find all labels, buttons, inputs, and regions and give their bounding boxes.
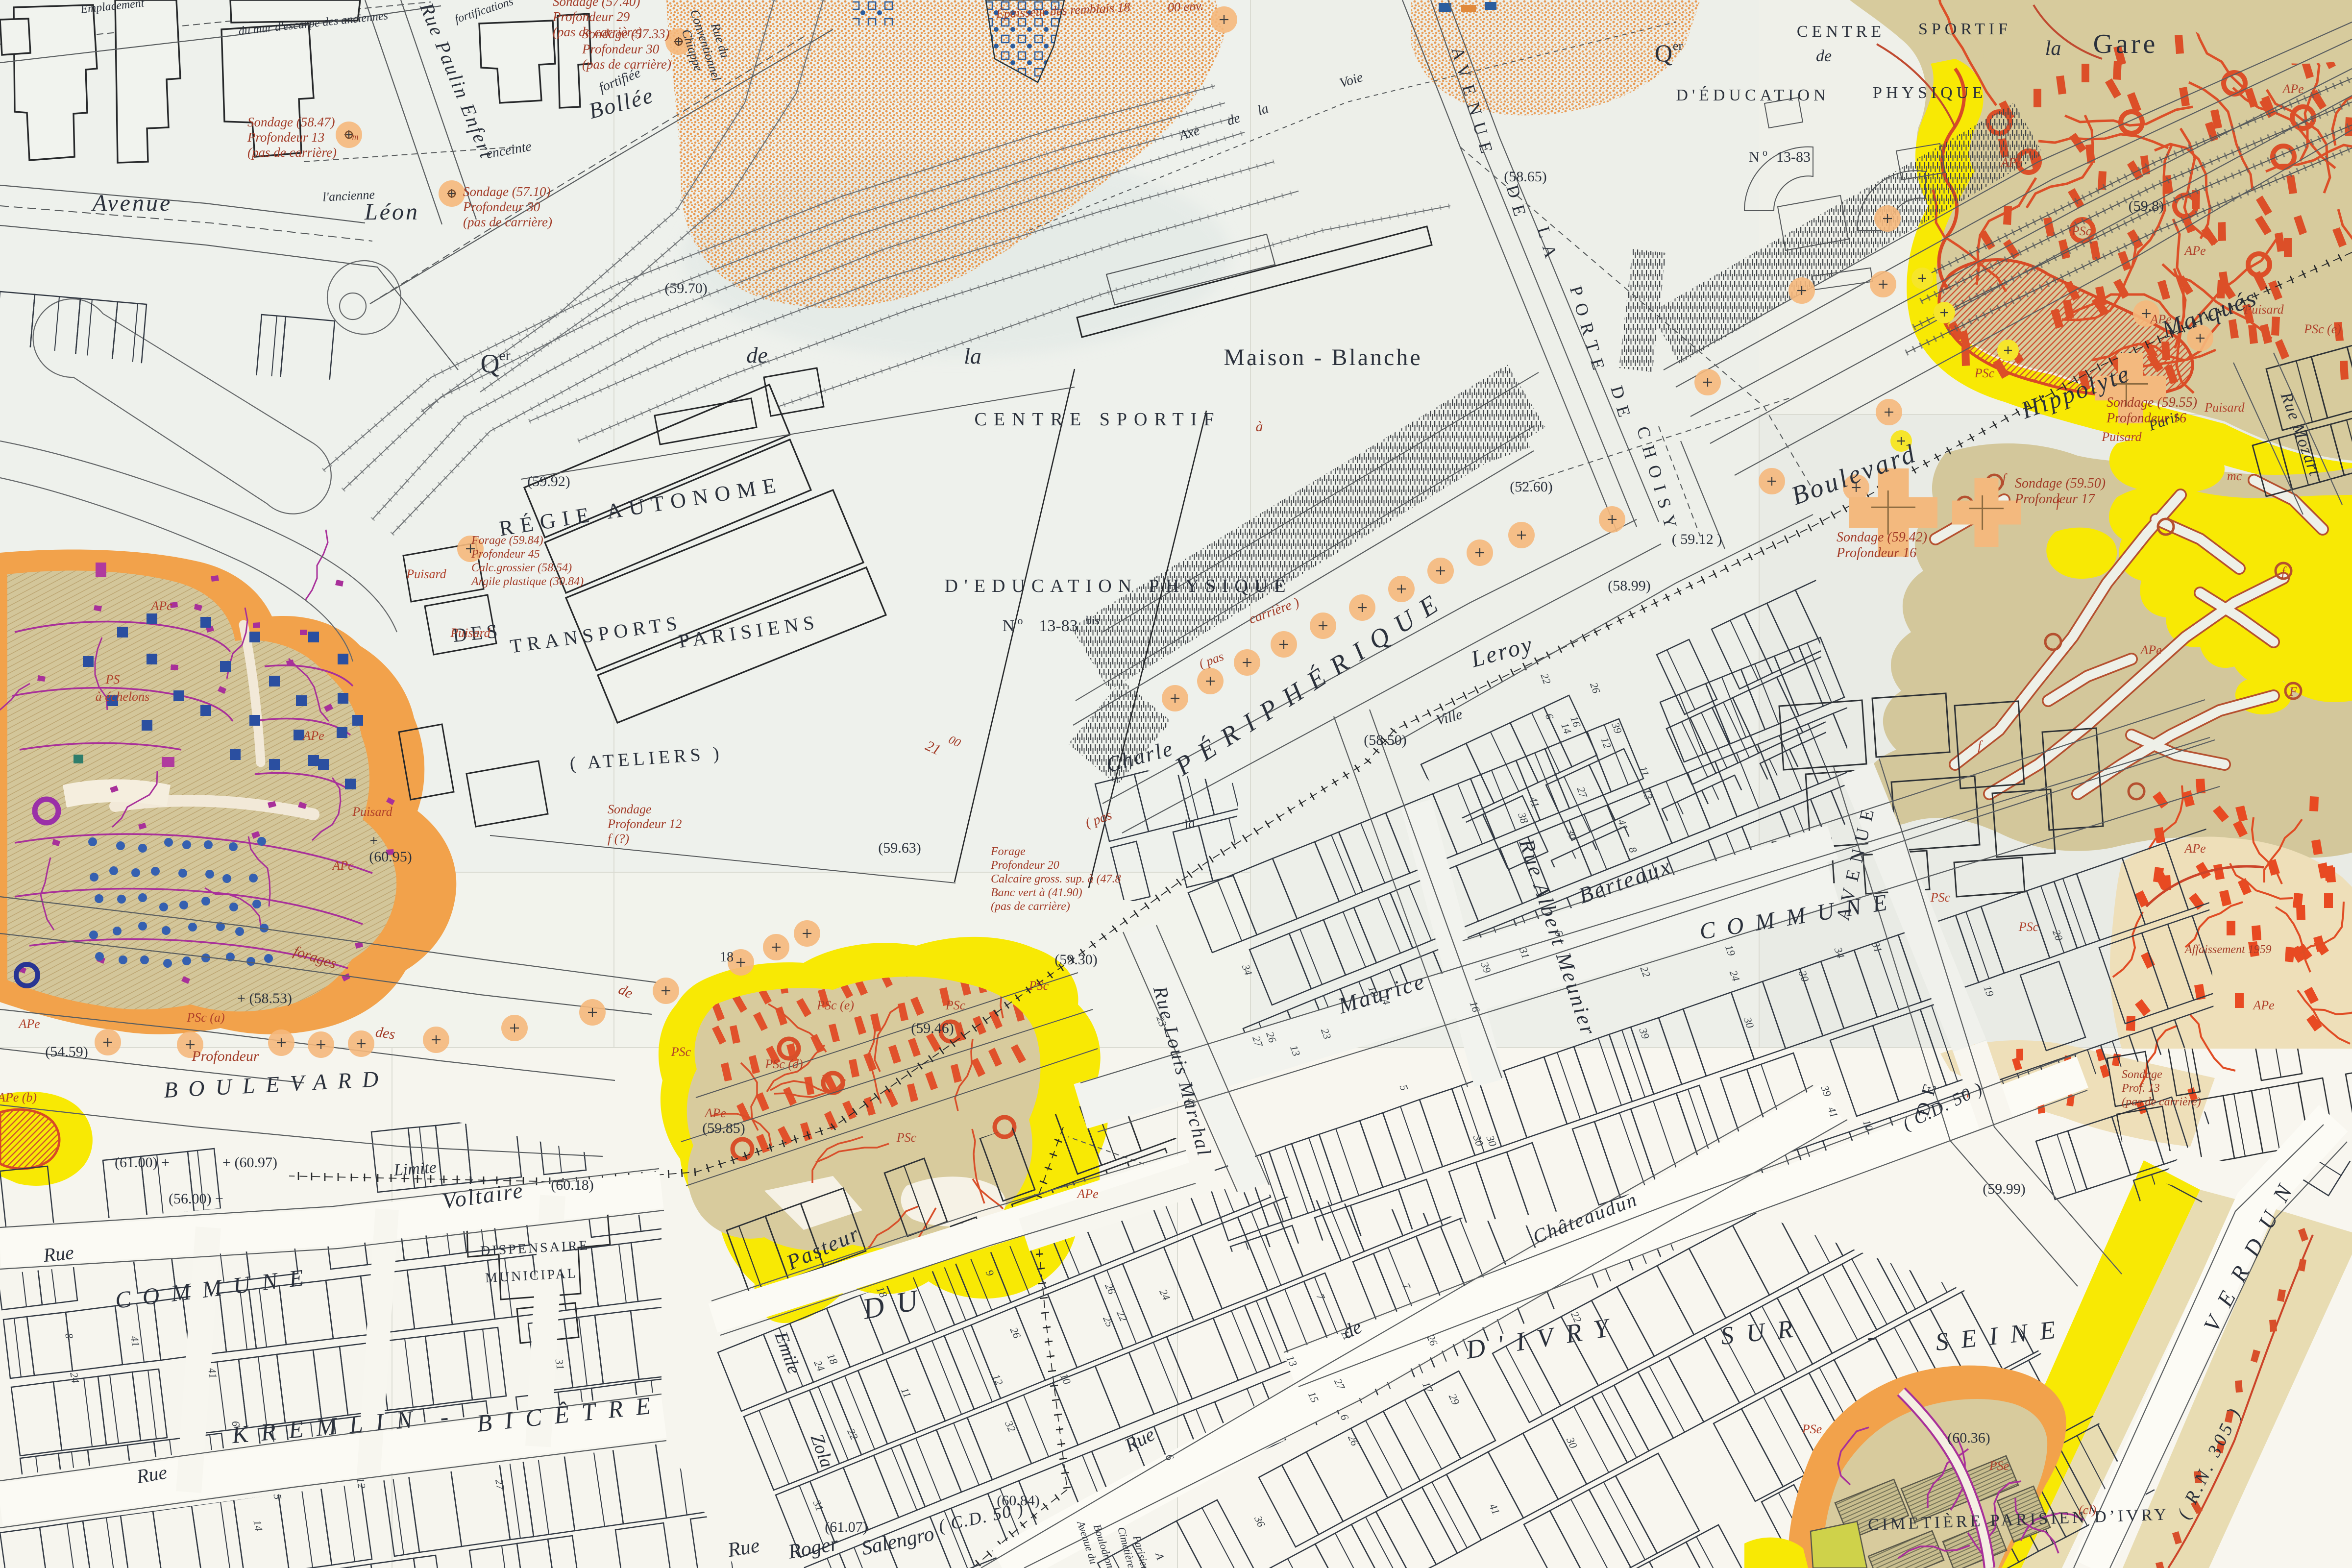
svg-text:Puisard: Puisard: [450, 626, 490, 640]
svg-text:(58.50): (58.50): [1364, 732, 1406, 748]
svg-text:(59.85): (59.85): [702, 1120, 745, 1136]
svg-text:APe: APe: [2139, 643, 2161, 657]
svg-text:Puisard: Puisard: [2204, 400, 2245, 415]
svg-text:Forage: Forage: [990, 845, 1026, 858]
svg-text:12: 12: [354, 1477, 368, 1490]
svg-text:(60.36): (60.36): [1947, 1430, 1990, 1446]
svg-text:Gare: Gare: [2093, 29, 2158, 59]
svg-text:Sondage (59.50): Sondage (59.50): [2015, 476, 2106, 491]
svg-text:(59.30): (59.30): [1054, 952, 1097, 968]
svg-text:la: la: [2045, 37, 2061, 60]
svg-text:PSc: PSc: [1974, 366, 1995, 380]
svg-text:APe: APe: [18, 1017, 40, 1031]
svg-text:Q: Q: [481, 349, 500, 378]
svg-text:PSc (e): PSc (e): [816, 998, 854, 1012]
svg-text:APe: APe: [704, 1106, 726, 1120]
svg-text:CENTRE: CENTRE: [1797, 23, 1885, 41]
svg-text:Prof. 13: Prof. 13: [2121, 1082, 2160, 1095]
svg-text:(61.00) +: (61.00) +: [115, 1154, 170, 1171]
svg-text:(60.18): (60.18): [551, 1177, 593, 1193]
svg-text:PHYSIQUE: PHYSIQUE: [1873, 84, 1986, 102]
svg-text:à: à: [1256, 418, 1263, 435]
svg-text:Profondeur 16: Profondeur 16: [2106, 411, 2186, 426]
svg-text:o: o: [1763, 147, 1767, 158]
svg-text:o: o: [1018, 614, 1023, 627]
svg-text:N: N: [1749, 149, 1760, 165]
svg-text:Profondeur 13: Profondeur 13: [247, 130, 324, 145]
svg-text:(pas de carrière): (pas de carrière): [582, 57, 671, 72]
svg-text:APe: APe: [302, 729, 324, 743]
svg-text:Calc.grossier (58.54): Calc.grossier (58.54): [471, 562, 572, 574]
svg-text:(pas de carrière): (pas de carrière): [463, 215, 552, 229]
svg-text:Forage (59.84): Forage (59.84): [471, 534, 543, 547]
svg-text:(60.84): (60.84): [997, 1493, 1039, 1509]
svg-text:Banc vert à (41.90): Banc vert à (41.90): [991, 886, 1082, 899]
svg-text:(54.59): (54.59): [45, 1044, 88, 1060]
svg-text:+: +: [370, 833, 378, 849]
svg-text:(58.99): (58.99): [1608, 578, 1650, 594]
svg-text:(59.63): (59.63): [878, 840, 921, 856]
svg-text:APe: APe: [1076, 1187, 1098, 1201]
svg-text:13-83: 13-83: [1776, 149, 1811, 165]
svg-text:F: F: [2289, 685, 2298, 699]
svg-text:(59.8): (59.8): [2129, 198, 2164, 214]
svg-text:PSc: PSc: [1930, 890, 1951, 905]
svg-text:Calcaire gross. sup. à (47.8: Calcaire gross. sup. à (47.8: [991, 873, 1121, 885]
svg-text:APe: APe: [2183, 244, 2205, 258]
svg-text:(60.95): (60.95): [369, 849, 412, 865]
svg-text:mc: mc: [2227, 469, 2242, 483]
svg-text:PSc: PSc: [2018, 920, 2039, 934]
svg-text:Profondeur 20: Profondeur 20: [990, 859, 1059, 872]
svg-text:APe (b): APe (b): [0, 1090, 37, 1104]
svg-text:des: des: [374, 1024, 396, 1042]
svg-text:(pas de carrière): (pas de carrière): [553, 24, 642, 39]
svg-text:PSc (a): PSc (a): [186, 1010, 224, 1025]
svg-text:(pas de carrière): (pas de carrière): [247, 145, 337, 160]
svg-text:(pas de carrière): (pas de carrière): [991, 900, 1070, 913]
svg-text:(56.00) +: (56.00) +: [169, 1191, 223, 1207]
svg-text:Sondage (57.10): Sondage (57.10): [463, 184, 550, 199]
svg-text:PSe: PSe: [1989, 1459, 2009, 1473]
svg-text:Rue: Rue: [42, 1241, 75, 1266]
svg-text:Puisard: Puisard: [406, 567, 446, 581]
svg-text:la: la: [964, 343, 981, 368]
svg-text:(59.70): (59.70): [664, 280, 707, 296]
svg-text:(59.92): (59.92): [527, 473, 570, 490]
svg-text:APe: APe: [2149, 312, 2171, 326]
svg-text:l'ancienne: l'ancienne: [322, 187, 375, 204]
svg-text:APc: APc: [331, 858, 354, 873]
svg-text:f (?): f (?): [608, 832, 629, 846]
svg-text:PSc: PSc: [896, 1130, 917, 1145]
svg-text:de: de: [746, 343, 767, 367]
svg-text:PSc: PSc: [671, 1045, 691, 1059]
svg-text:Puisard: Puisard: [352, 805, 392, 819]
svg-text:de: de: [1816, 47, 1832, 65]
svg-text:Profondeur 16: Profondeur 16: [1836, 545, 1916, 561]
svg-text:31: 31: [553, 1358, 567, 1371]
svg-text:PS: PS: [105, 672, 120, 686]
svg-text:APe: APe: [2183, 841, 2205, 856]
svg-text:N: N: [1003, 617, 1015, 635]
svg-text:Profondeur 30: Profondeur 30: [463, 199, 540, 214]
svg-text:PSc: PSc: [945, 998, 966, 1012]
svg-text:(59.99): (59.99): [1983, 1181, 2025, 1197]
svg-text:(58.65): (58.65): [1504, 169, 1546, 185]
svg-text:(52.60): (52.60): [1510, 479, 1552, 495]
svg-text:Avenue: Avenue: [91, 190, 172, 216]
svg-text:(59.46): (59.46): [911, 1020, 954, 1036]
svg-text:14: 14: [251, 1519, 265, 1532]
svg-text:APc: APc: [150, 599, 172, 613]
svg-text:CENTRE SPORTIF: CENTRE SPORTIF: [974, 409, 1221, 430]
svg-text:24: 24: [68, 1371, 81, 1384]
svg-text:Profondeur 29: Profondeur 29: [552, 9, 630, 24]
svg-text:APe: APe: [2281, 82, 2303, 96]
svg-text:Sondage: Sondage: [608, 802, 652, 816]
svg-text:D'EDUCATION PHYSIQUE: D'EDUCATION PHYSIQUE: [944, 576, 1292, 596]
svg-text:PSe: PSe: [1802, 1422, 1822, 1436]
svg-text:41: 41: [206, 1367, 220, 1379]
svg-text:13-83: 13-83: [1039, 617, 1078, 635]
svg-text:PSc: PSc: [1029, 979, 1049, 993]
svg-text:Q: Q: [1655, 39, 1672, 67]
svg-text:Profondeur: Profondeur: [191, 1048, 259, 1064]
svg-text:er: er: [499, 347, 510, 364]
svg-text:+ (58.53): + (58.53): [237, 990, 292, 1006]
svg-text:Maison - Blanche: Maison - Blanche: [1224, 344, 1422, 370]
svg-text:Sondage (57.40): Sondage (57.40): [553, 0, 640, 9]
svg-text:Limite: Limite: [393, 1158, 437, 1179]
svg-text:à échelons: à échelons: [96, 689, 149, 704]
svg-text:Sondage (58.47): Sondage (58.47): [247, 115, 335, 129]
svg-text:18: 18: [720, 950, 734, 965]
svg-text:PSc: PSc: [2071, 224, 2092, 238]
svg-text:m: m: [352, 132, 359, 142]
svg-text:+ (60.97): + (60.97): [222, 1154, 277, 1171]
svg-text:Puisard: Puisard: [2243, 302, 2284, 317]
svg-text:(61.07): (61.07): [825, 1519, 867, 1535]
svg-text:00 env.: 00 env.: [1167, 0, 1204, 15]
svg-text:Sondage: Sondage: [2122, 1068, 2162, 1081]
svg-text:APe: APe: [2000, 155, 2022, 170]
svg-text:er: er: [1673, 39, 1683, 53]
svg-text:Profondeur 17: Profondeur 17: [2014, 491, 2095, 507]
svg-text:APe: APe: [2252, 998, 2274, 1012]
svg-text:PSc (e): PSc (e): [2303, 322, 2341, 336]
svg-text:bis: bis: [1086, 614, 1100, 627]
svg-text:41: 41: [128, 1335, 142, 1347]
svg-text:Argile plastique (30.84): Argile plastique (30.84): [470, 575, 584, 588]
svg-text:Sondage (59.55): Sondage (59.55): [2107, 395, 2197, 410]
svg-text:( 59.12 ): ( 59.12 ): [1672, 531, 1722, 547]
svg-text:Puisard: Puisard: [2101, 430, 2142, 444]
svg-text:SPORTIF: SPORTIF: [1918, 20, 2011, 38]
svg-text:Profondeur 30: Profondeur 30: [582, 42, 660, 56]
svg-text:PSc (d): PSc (d): [764, 1057, 803, 1071]
svg-text:(cl): (cl): [2079, 1503, 2096, 1517]
svg-text:(pas de carrière): (pas de carrière): [2122, 1096, 2201, 1108]
svg-text:Profondeur 45: Profondeur 45: [471, 548, 540, 561]
svg-text:Profondeur 12: Profondeur 12: [607, 817, 682, 831]
svg-text:D'ÉDUCATION: D'ÉDUCATION: [1676, 86, 1829, 104]
svg-text:Léon: Léon: [364, 199, 419, 225]
svg-text:Affaissement 1959: Affaissement 1959: [2184, 943, 2272, 956]
svg-text:Sondage (59.42): Sondage (59.42): [1837, 530, 1927, 545]
